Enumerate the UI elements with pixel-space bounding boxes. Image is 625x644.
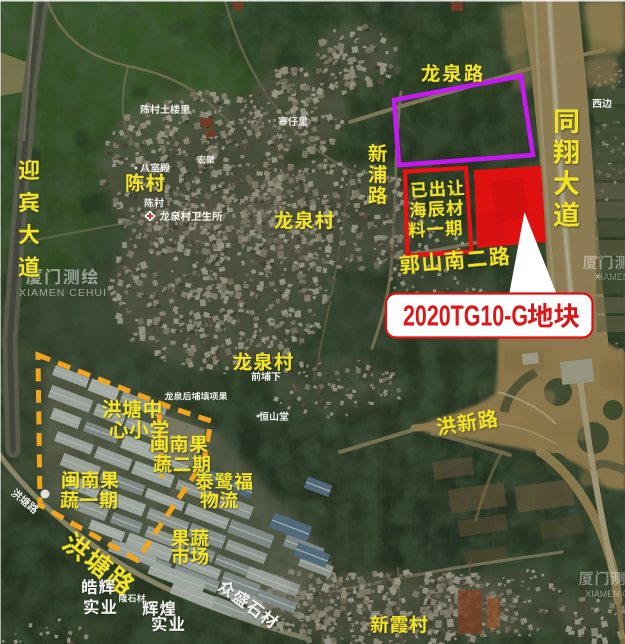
svg-text:XIAMEN CE: XIAMEN CE bbox=[585, 589, 625, 599]
svg-text:XIAMEN: XIAMEN bbox=[595, 272, 625, 282]
svg-text:XIAMEN CEHUI: XIAMEN CEHUI bbox=[19, 287, 107, 299]
svg-text:2020TG10-G: 2020TG10-G bbox=[403, 301, 528, 333]
